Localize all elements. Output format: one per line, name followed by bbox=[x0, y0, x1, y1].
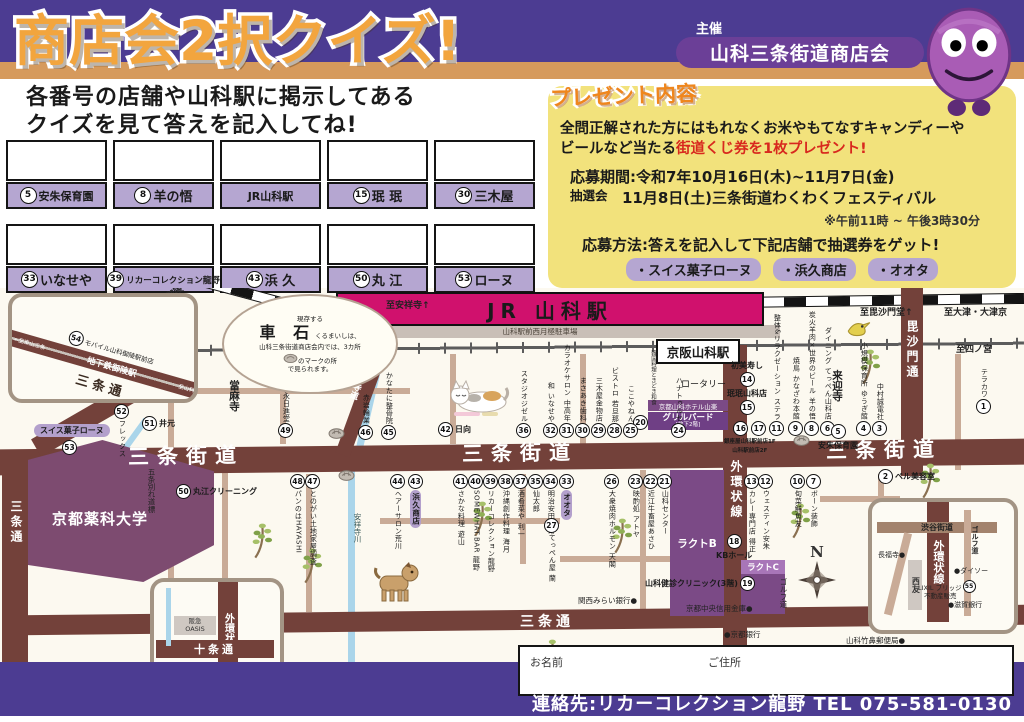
map-shop-name: 焼鳥 かなざわ本館 bbox=[792, 357, 800, 420]
map-shop-name: 安朱保育園 bbox=[818, 440, 858, 451]
answer-write-area[interactable] bbox=[220, 224, 321, 265]
number-badge: 32 bbox=[543, 423, 558, 438]
number-badge: 3 bbox=[872, 421, 887, 436]
number-badge: 41 bbox=[453, 474, 468, 489]
store-tag: 15珉 珉 bbox=[327, 182, 428, 209]
organizer-label: 主催 bbox=[696, 18, 722, 37]
instructions: 各番号の店舗や山科駅に掲示してある クイズを見て答えを記入してね! bbox=[26, 84, 416, 139]
number-badge: 46 bbox=[358, 425, 373, 440]
map-text: 来迎寺 bbox=[830, 370, 845, 402]
number-badge: 24 bbox=[671, 423, 686, 438]
map-shop: 小規模保育所 ゆうぎ館4 bbox=[856, 342, 871, 436]
map-shop: 33オオタ bbox=[559, 474, 574, 520]
map-text: 當麻寺 bbox=[227, 380, 242, 412]
map-shop-name: 大衆焼肉ホルモン 天閣 bbox=[608, 490, 616, 568]
map-shop-name: 映酌処 アトヤ bbox=[632, 490, 640, 538]
number-badge: 10 bbox=[790, 474, 805, 489]
map-shop-name: 旬菜鮮魚友 bbox=[794, 490, 802, 528]
number-badge: 12 bbox=[758, 474, 773, 489]
map-shop-name: オオタ bbox=[561, 490, 571, 520]
number-badge: 21 bbox=[657, 474, 672, 489]
map-shop-name: 小規模保育所 ゆうぎ館 bbox=[860, 342, 868, 420]
map-text: 五条別れ道標 bbox=[146, 468, 157, 513]
map-shop-name: 初美寿し bbox=[731, 360, 763, 371]
map-shop: 38沖縄創作料理 海月 bbox=[498, 474, 513, 553]
number-badge: 15 bbox=[353, 187, 370, 204]
number-badge: 29 bbox=[591, 423, 606, 438]
cat-illustration bbox=[448, 380, 510, 420]
map-shop-name: 浜久商店 bbox=[410, 490, 420, 528]
road-name: 外環状線 bbox=[728, 460, 745, 520]
map-shop: 42日向 bbox=[438, 422, 471, 437]
map-shop: 52フレックス bbox=[114, 404, 129, 458]
map-shop-name: ここやねん bbox=[627, 385, 635, 423]
number-badge: 52 bbox=[114, 404, 129, 419]
map-shop-name: リカーコレクション龍野 bbox=[487, 490, 495, 573]
time-note: ※午前11時 ~ 午後3時30分 bbox=[824, 212, 980, 229]
map-shop-name: 整体&リラクゼーション ステラ bbox=[773, 314, 781, 420]
road-name: 三条街道 bbox=[462, 436, 579, 468]
number-badge: 53 bbox=[62, 440, 77, 455]
number-badge: 14 bbox=[740, 372, 755, 387]
number-badge: 13 bbox=[744, 474, 759, 489]
answer-write-area[interactable] bbox=[327, 140, 428, 181]
map-shop: 21山科センター bbox=[657, 474, 672, 535]
golf-label: ゴルフ道 bbox=[970, 526, 980, 554]
answer-write-area[interactable] bbox=[327, 224, 428, 265]
answer-write-area[interactable] bbox=[6, 140, 107, 181]
map-shop-name: カラオケサロン 中高年 bbox=[563, 344, 571, 422]
river bbox=[166, 588, 171, 646]
map-shop: スタジオジゼル36 bbox=[516, 370, 531, 439]
map-shop: 41さかな料理 遊山 bbox=[453, 474, 468, 545]
map-shop: 10旬菜鮮魚友 bbox=[790, 474, 805, 528]
store-tag: 33いなせや bbox=[6, 266, 107, 293]
map-shop-name: ハナトゥルセ bbox=[675, 377, 683, 422]
answer-cell: 50丸 江 bbox=[327, 224, 428, 293]
map-shop: 中村誠電社3 bbox=[872, 383, 887, 437]
compass-icon bbox=[798, 561, 836, 599]
address-field[interactable] bbox=[700, 647, 1012, 694]
number-badge: 28 bbox=[607, 423, 622, 438]
map-shop-name: ウェスティン安朱 bbox=[762, 490, 770, 550]
map-shop-name: 中村誠電社 bbox=[876, 383, 884, 421]
answer-write-area[interactable] bbox=[434, 140, 535, 181]
map-shop: テラカワ1 bbox=[976, 368, 991, 414]
contact-info: 連絡先:リカーコレクション龍野 TEL 075-581-0130 bbox=[532, 690, 1012, 716]
number-badge: 25 bbox=[623, 423, 638, 438]
jujo-inset: 外環状線 十条通 阪急OASIS 56インサイトハウス bbox=[150, 578, 284, 662]
direction-label: 至四ノ宮 bbox=[956, 342, 992, 355]
map-shop: 5安朱保育園 bbox=[818, 424, 858, 451]
name-field[interactable] bbox=[520, 647, 700, 694]
stone-icon bbox=[283, 352, 298, 363]
lottery-label: 抽選会 bbox=[570, 185, 608, 204]
map-shop: 12ウェスティン安朱 bbox=[758, 474, 773, 550]
entry-form: お名前 ご住所 bbox=[518, 645, 1014, 696]
map-shop-name: 山科センター bbox=[661, 490, 669, 535]
number-badge: 51 bbox=[142, 416, 157, 431]
number-badge: 2 bbox=[878, 469, 893, 484]
sanjo-dori-road bbox=[2, 470, 28, 662]
university-label: 京都薬科大学 bbox=[52, 508, 148, 529]
road-name: 毘沙門通 bbox=[904, 320, 921, 380]
number-badge: 16 bbox=[733, 421, 748, 436]
map-shop-name: 和 いなせや bbox=[547, 382, 555, 422]
map-shop-name: 珉珉山科店 bbox=[727, 388, 767, 399]
map-shop-name: かなたに整骨院 bbox=[385, 372, 393, 425]
page-title: 商店会2択クイズ! bbox=[14, 0, 461, 76]
map-shop-name: 三木屋金物店 bbox=[595, 377, 603, 422]
map-shop: 39リカーコレクション龍野 bbox=[483, 474, 498, 573]
answer-write-area[interactable] bbox=[6, 224, 107, 265]
map-shop: 47とのがい土地家屋調査 bbox=[305, 474, 320, 565]
number-badge: 7 bbox=[806, 474, 821, 489]
number-badge: 49 bbox=[278, 423, 293, 438]
map-shop-name: 近江牛畜屋あさひ bbox=[647, 490, 655, 550]
number-badge: 50 bbox=[176, 484, 191, 499]
map-shop: 37酒肴菜や 利一 bbox=[513, 474, 528, 538]
map-shop: ここやねん25 bbox=[623, 385, 638, 439]
map-shop: 炭火羊肉×世界のビール 羊の悟8 bbox=[804, 311, 819, 436]
map-text: 関西みらい銀行● bbox=[578, 595, 637, 606]
map-shop-name: テラカワ bbox=[980, 368, 988, 398]
map-shop: 和 いなせや32 bbox=[543, 382, 558, 438]
bird-illustration bbox=[846, 318, 872, 338]
map-shop: 山科健診クリニック(3階)19 bbox=[645, 576, 755, 591]
map-shop: 43浜久商店 bbox=[408, 474, 423, 528]
number-badge: 33 bbox=[21, 271, 38, 288]
number-badge: 45 bbox=[381, 425, 396, 440]
answer-grid: 5安朱保育園 8羊の悟 JR山科駅 15珉 珉 30三木屋 33いなせや 39リ… bbox=[6, 140, 538, 308]
map-shop: 2ベル美容室 bbox=[878, 469, 935, 484]
entry-shop-badge: ・オオタ bbox=[868, 258, 938, 281]
map-shop: 18KBホール bbox=[716, 534, 752, 561]
map-shop-name: 沖縄創作料理 海月 bbox=[502, 490, 510, 553]
number-badge: 43 bbox=[408, 474, 423, 489]
answer-cell: JR山科駅 bbox=[220, 140, 321, 209]
map-shop-name: ベル美容室 bbox=[895, 471, 935, 482]
number-badge: 39 bbox=[483, 474, 498, 489]
map-shop-name: 炭火羊肉×世界のビール 羊の悟 bbox=[808, 311, 816, 420]
answer-write-area[interactable] bbox=[113, 140, 214, 181]
prize-body-line2: ビールなど当たる街道くじ券を1枚プレゼント! bbox=[560, 137, 867, 158]
direction-label: 至大津・大津京 bbox=[944, 305, 1007, 318]
tree-icon bbox=[250, 520, 280, 564]
mascot-character bbox=[918, 4, 1020, 118]
prize-heading: プレゼント内容 bbox=[550, 77, 698, 112]
map-shop-name: まさあき歯科 bbox=[579, 377, 587, 422]
number-badge: 31 bbox=[559, 423, 574, 438]
kurumaishi-callout: 現存する 車 石くるまいしは、 山科三条街道商店会内では、3カ所 のマークの所 … bbox=[222, 294, 398, 394]
number-badge: 34 bbox=[543, 474, 558, 489]
map-shop-name: とのがい土地家屋調査 bbox=[309, 490, 317, 565]
map-shop: 50丸江クリーニング bbox=[176, 484, 257, 499]
number-badge: 5 bbox=[20, 187, 37, 204]
number-badge: 35 bbox=[528, 474, 543, 489]
map-shop: 1617銀座屋山科駅前店1F山科駅前店2F bbox=[724, 421, 776, 454]
answer-cell: 30三木屋 bbox=[434, 140, 535, 209]
map-shop-name: さかな料理 遊山 bbox=[457, 490, 465, 545]
map-shop: 焼鳥 かなざわ本館9 bbox=[788, 357, 803, 436]
map-text: ゴルフ道 bbox=[778, 578, 789, 608]
store-tag: 5安朱保育園 bbox=[6, 182, 107, 209]
shiga-bank-label: ●滋賀銀行 bbox=[948, 600, 982, 610]
number-badge: 18 bbox=[727, 534, 742, 549]
direction-label: 至安祥寺↑ bbox=[386, 298, 430, 311]
map-shop: 51井元 bbox=[142, 416, 175, 431]
store-tag: 39リカーコレクション龍野 bbox=[113, 266, 214, 293]
store-tag: 30三木屋 bbox=[434, 182, 535, 209]
number-badge: 47 bbox=[305, 474, 320, 489]
number-badge: 27 bbox=[544, 518, 559, 533]
map-shop: 23映酌処 アトヤ bbox=[628, 474, 643, 538]
keihan-station: 京阪山科駅 bbox=[656, 339, 740, 364]
map-shop: 珉珉山科店15 bbox=[727, 388, 767, 415]
map-shop-name: フレックス bbox=[118, 420, 126, 458]
map-shop-name: 銀座屋山科駅前店1F bbox=[724, 437, 776, 445]
map-shop: カラオケサロン 中高年31 bbox=[559, 344, 574, 438]
number-badge: 30 bbox=[575, 423, 590, 438]
hotel-bar: 京都山科ホテル山楽 bbox=[648, 400, 728, 411]
entry-period: 応募期間:令和7年10月16日(木)~11月7日(金) bbox=[570, 166, 895, 187]
hankyu-oasis-block: 阪急OASIS bbox=[174, 616, 216, 635]
compass-rose: N bbox=[798, 543, 836, 599]
jujo-road: 十条通 bbox=[156, 640, 274, 658]
number-badge: 15 bbox=[740, 400, 755, 415]
number-badge: 43 bbox=[246, 271, 263, 288]
store-tag: 8羊の悟 bbox=[113, 182, 214, 209]
number-badge: 8 bbox=[134, 187, 151, 204]
prize-highlight: 街道くじ券を1枚プレゼント! bbox=[676, 141, 867, 157]
number-badge: 19 bbox=[740, 576, 755, 591]
map-shop-name: てっぺん屋 蘭 bbox=[548, 534, 556, 582]
answer-write-area[interactable] bbox=[220, 140, 321, 181]
answer-cell: 39リカーコレクション龍野 bbox=[113, 224, 214, 293]
map-shop: 48パンのはHAYASHI bbox=[290, 474, 305, 553]
answer-row-1: 5安朱保育園 8羊の悟 JR山科駅 15珉 珉 30三木屋 bbox=[6, 140, 538, 209]
instructions-line2: クイズを見て答えを記入してね! bbox=[26, 112, 416, 140]
entry-method: 応募方法:答えを記入して下記店舗で抽選券をゲット! bbox=[582, 234, 939, 255]
road-name: 三条通 bbox=[520, 611, 574, 631]
number-badge: 33 bbox=[559, 474, 574, 489]
answer-cell: 5安朱保育園 bbox=[6, 140, 107, 209]
grill-bar: グリルバード [地下2階] bbox=[648, 412, 728, 430]
map-shop-name: スイス菓子ローヌ bbox=[34, 424, 110, 437]
map-shop: ハナトゥルセ24 bbox=[671, 377, 686, 438]
number-badge: 9 bbox=[788, 421, 803, 436]
map-shop-name: 赤岩輪業 bbox=[362, 394, 370, 424]
answer-write-area[interactable] bbox=[434, 224, 535, 265]
map-shop: 27てっぺん屋 蘭 bbox=[544, 518, 559, 582]
daiso-label: ●ダイソー bbox=[954, 566, 988, 576]
number-badge: 4 bbox=[856, 421, 871, 436]
map-shop: 三木屋金物店29 bbox=[591, 377, 606, 438]
number-badge: 23 bbox=[628, 474, 643, 489]
entry-shops: ・スイス菓子ローヌ ・浜久商店 ・オオタ bbox=[548, 258, 1016, 281]
number-badge: 36 bbox=[516, 423, 531, 438]
map-shop-name: ビストロ 若旦那 bbox=[611, 367, 619, 422]
number-badge: 48 bbox=[290, 474, 305, 489]
entry-shop-badge: ・スイス菓子ローヌ bbox=[626, 258, 761, 281]
map-shop: 40SOMEWHAT.BAR 龍野 bbox=[468, 474, 483, 571]
number-badge: 8 bbox=[804, 421, 819, 436]
number-badge: 1 bbox=[976, 399, 991, 414]
road-name: 三条街道 bbox=[128, 439, 245, 471]
number-badge: 39 bbox=[107, 271, 124, 288]
gaikan-road: 外環状線 bbox=[927, 502, 949, 622]
map-text: 韓国料理ときどき和食 bbox=[649, 350, 657, 405]
number-badges: 1617 bbox=[733, 421, 766, 436]
map-shop-name: ヘアーサロン荒川 bbox=[394, 490, 402, 550]
number-badge: 53 bbox=[455, 271, 472, 288]
map-shop: 35仙太郎 bbox=[528, 474, 543, 513]
map-shop-name: 日向 bbox=[455, 424, 471, 435]
number-badge: 30 bbox=[455, 187, 472, 204]
rotary-label: ロータリー bbox=[681, 377, 726, 390]
number-badge: 42 bbox=[438, 422, 453, 437]
map-shop: 整体&リラクゼーション ステラ11 bbox=[769, 314, 784, 436]
stone-icon bbox=[338, 466, 355, 485]
answer-cell: 8羊の悟 bbox=[113, 140, 214, 209]
number-badge: 54 bbox=[67, 329, 86, 348]
organizer-name: 山科三条街道商店会 bbox=[676, 37, 924, 68]
map-shop: かなたに整骨院45 bbox=[381, 372, 396, 441]
map-shop: 22近江牛畜屋あさひ bbox=[643, 474, 658, 550]
area-map: 山科駅前西月極駐車場 JR 山科駅 京阪山科駅 ロータリー 京都薬科大学 ラクト… bbox=[0, 288, 1024, 662]
road-name: 三条通 bbox=[8, 500, 25, 545]
map-shop-name: 仙太郎 bbox=[532, 490, 540, 513]
map-text: ●京都銀行 bbox=[724, 629, 761, 640]
map-shop-name: スタジオジゼル bbox=[520, 370, 528, 423]
lottery-event: 11月8日(土)三条街道わくわくフェスティバル bbox=[622, 187, 936, 208]
map-text: 京都中央信用金庫● bbox=[686, 603, 753, 614]
map-shop: 赤岩輪業46 bbox=[358, 394, 373, 440]
gaikan-inset: 外環状線 渋谷街道 長福寺● 西友 ゴルフ道 ●ダイソー LIXIL ブリッジ5… bbox=[868, 498, 1018, 634]
entry-shop-badge: ・浜久商店 bbox=[773, 258, 856, 281]
map-shop: まさあき歯科30 bbox=[575, 377, 590, 438]
number-badge: 22 bbox=[643, 474, 658, 489]
map-shop-name: 酒肴菜や 利一 bbox=[517, 490, 525, 538]
map-shop-name: ボーン装飾 bbox=[810, 490, 818, 528]
map-shop: 26大衆焼肉ホルモン 天閣 bbox=[604, 474, 619, 568]
number-badge: 26 bbox=[604, 474, 619, 489]
map-shop-name: 井元 bbox=[159, 418, 175, 429]
temple-label: 長福寺● bbox=[878, 550, 905, 560]
number-badge: 40 bbox=[468, 474, 483, 489]
map-text: 安祥寺川 bbox=[352, 513, 363, 543]
anshoji-river bbox=[348, 468, 355, 662]
dog-illustration bbox=[372, 562, 420, 604]
map-shop: 7ボーン装飾 bbox=[806, 474, 821, 528]
answer-row-2: 33いなせや 39リカーコレクション龍野 43浜 久 50丸 江 53ローヌ bbox=[6, 224, 538, 293]
answer-cell: 15珉 珉 bbox=[327, 140, 428, 209]
number-badge: 44 bbox=[390, 474, 405, 489]
number-badge: 50 bbox=[353, 271, 370, 288]
store-tag: 50丸 江 bbox=[327, 266, 428, 293]
answer-cell: 53ローヌ bbox=[434, 224, 535, 293]
map-shop-name: パンのはHAYASHI bbox=[294, 490, 302, 553]
instructions-line1: 各番号の店舗や山科駅に掲示してある bbox=[26, 84, 416, 112]
map-shop: ビストロ 若旦那28 bbox=[607, 367, 622, 438]
answer-cell: 33いなせや bbox=[6, 224, 107, 293]
answer-write-area[interactable] bbox=[113, 224, 214, 265]
map-shop-name: 山科健診クリニック(3階) bbox=[645, 578, 738, 589]
map-shop-name: SOMEWHAT.BAR 龍野 bbox=[472, 490, 480, 571]
number-badge: 38 bbox=[498, 474, 513, 489]
stone-icon bbox=[328, 424, 345, 443]
number-badge: 17 bbox=[751, 421, 766, 436]
number-badge: 5 bbox=[831, 424, 846, 439]
direction-label: 至毘沙門堂↑ bbox=[860, 305, 913, 318]
store-tag: 53ローヌ bbox=[434, 266, 535, 293]
number-badge: 37 bbox=[513, 474, 528, 489]
map-shop-name: KBホール bbox=[716, 550, 752, 561]
map-shop-name: 丸江クリーニング bbox=[193, 486, 257, 497]
misasagi-inset: 54モバイル山科御陵駅前店 ←至東山三条地下鉄御陵駅至山科→ 三条通 bbox=[8, 293, 198, 403]
prize-body-line1: 全問正解された方にはもれなくお米やもてなすキャンディーや bbox=[560, 117, 964, 138]
lact-c-label: ラクトC bbox=[741, 560, 785, 574]
answer-cell: 43浜 久 bbox=[220, 224, 321, 293]
map-shop: 44ヘアーサロン荒川 bbox=[390, 474, 405, 550]
map-shop-name: 山科駅前店2F bbox=[732, 446, 767, 454]
store-tag: JR山科駅 bbox=[220, 182, 321, 209]
map-shop: 初美寿し14 bbox=[731, 360, 763, 387]
flyer-page: 商店会2択クイズ! 主催 山科三条街道商店会 各番号の店舗や山科駅に掲示してある… bbox=[0, 0, 1024, 722]
